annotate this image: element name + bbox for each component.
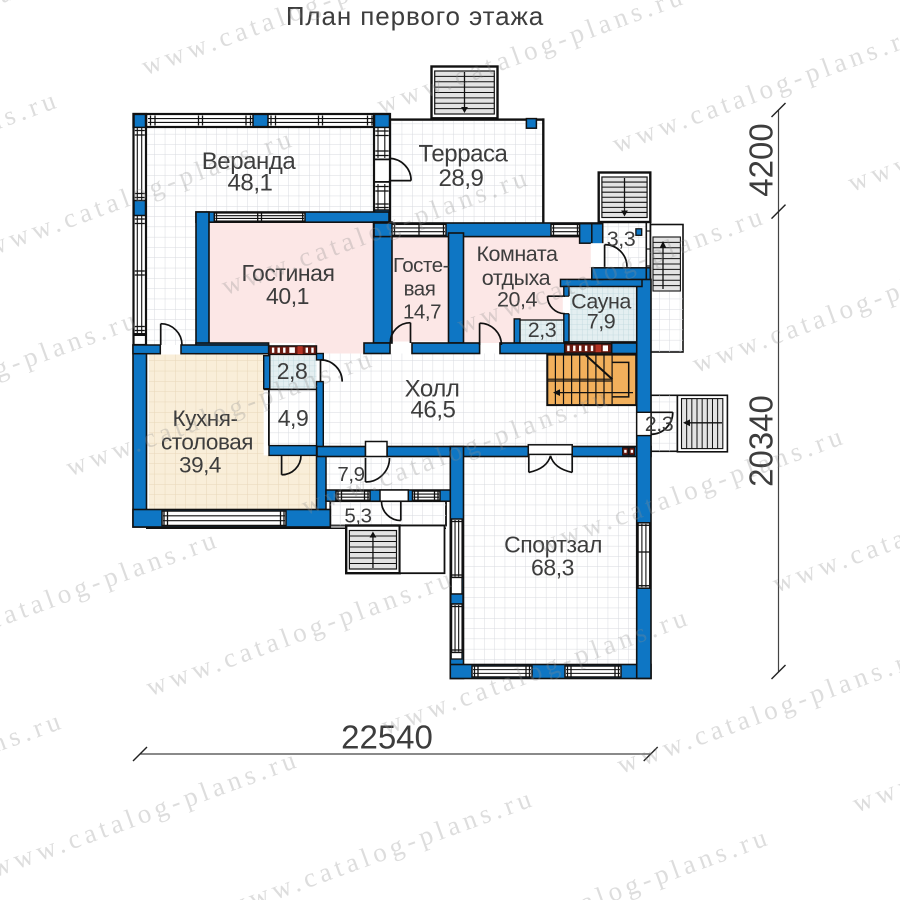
svg-text:14,7: 14,7 xyxy=(403,301,441,324)
svg-text:Терраса: Терраса xyxy=(419,141,509,168)
svg-text:2,3: 2,3 xyxy=(645,412,674,436)
svg-text:вая: вая xyxy=(404,278,436,301)
svg-text:39,4: 39,4 xyxy=(179,453,221,478)
svg-text:5,3: 5,3 xyxy=(344,505,371,528)
svg-text:4200: 4200 xyxy=(743,123,780,196)
svg-text:Госте-: Госте- xyxy=(393,254,449,277)
svg-text:46,5: 46,5 xyxy=(411,397,456,424)
svg-text:Комната: Комната xyxy=(476,242,558,266)
svg-text:2,3: 2,3 xyxy=(528,318,557,342)
svg-text:68,3: 68,3 xyxy=(531,555,574,581)
svg-text:4,9: 4,9 xyxy=(278,405,309,431)
svg-text:40,1: 40,1 xyxy=(266,283,309,309)
svg-text:7,9: 7,9 xyxy=(587,310,616,334)
